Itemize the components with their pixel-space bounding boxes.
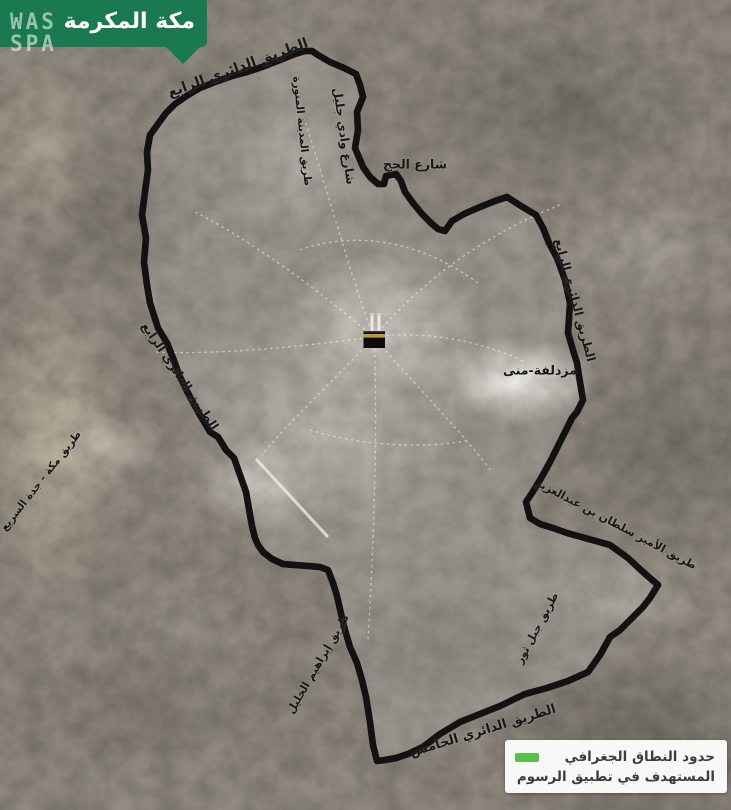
boundary-line-swatch [515,753,539,762]
road-label-hajj-street: شارع الحج [383,157,447,172]
spa-logo-watermark: WAS SPA [10,11,57,55]
spa-logo-line2: SPA [10,33,57,55]
page-title: مكة المكرمة [64,9,195,34]
legend-box: حدود النطاق الجغرافي المستهدف في تطبيق ا… [505,740,727,793]
map-canvas: الطريق الدائري الرابع طريق المدينة المنو… [0,0,731,810]
map-vector-layer [0,0,731,810]
legend-line2: المستهدف في تطبيق الرسوم [515,767,715,787]
spa-logo-line1: WAS [10,11,57,33]
road-label-muzdalifah-mina: مزدلفة-منى [503,363,577,378]
banner-pointer [166,47,200,64]
legend-line1: حدود النطاق الجغرافي [565,747,715,767]
